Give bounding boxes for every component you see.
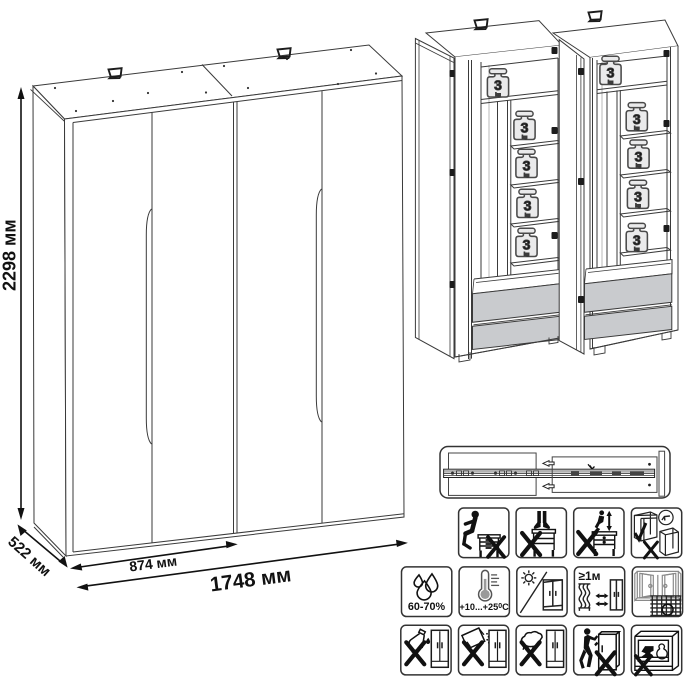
svg-text:60-70%: 60-70%: [408, 601, 446, 613]
svg-text:874 мм: 874 мм: [128, 553, 178, 575]
svg-text:2298 мм: 2298 мм: [0, 219, 20, 291]
svg-text:≥1м: ≥1м: [578, 569, 600, 583]
svg-text:+10...+250C: +10...+250C: [459, 602, 509, 612]
